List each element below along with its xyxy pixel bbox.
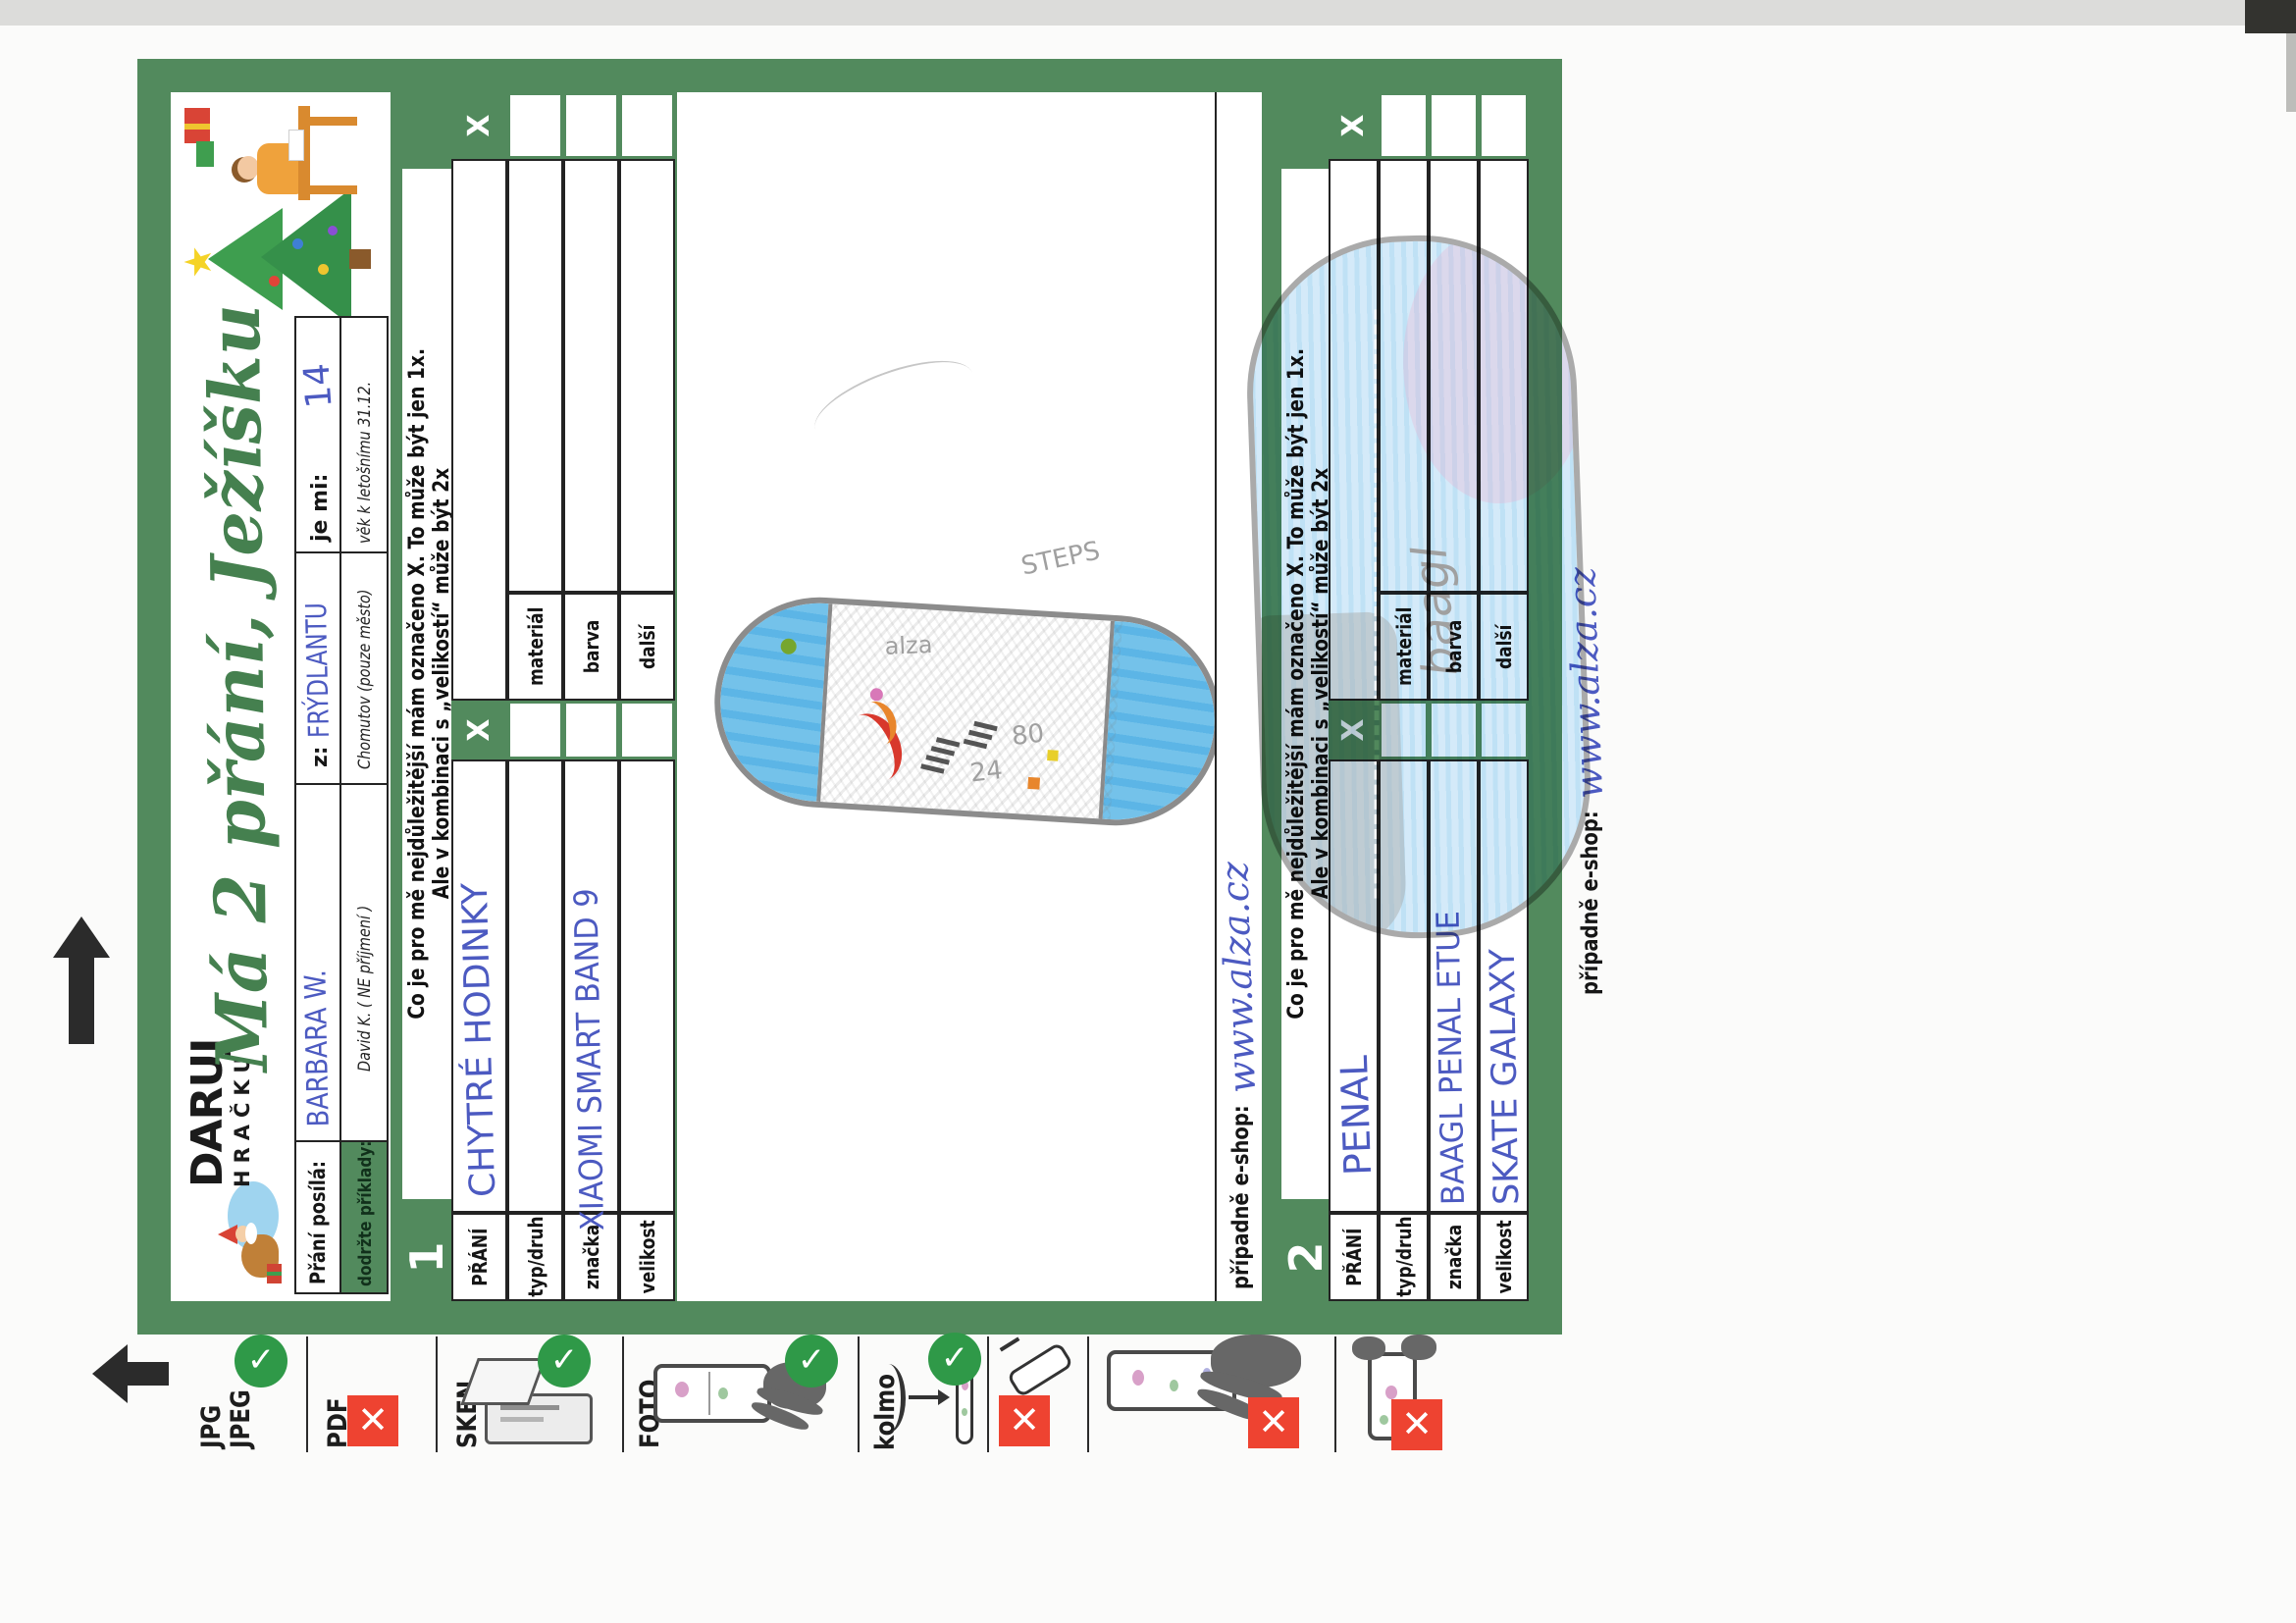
sender-value-handwriting: BARBARA W. xyxy=(290,838,337,1140)
checkbox-cell xyxy=(619,701,675,759)
case-brand-scribble: baagl xyxy=(1402,544,1468,678)
tilted-phone-icon xyxy=(1006,1341,1073,1398)
checkbox-cell xyxy=(507,92,563,159)
strip-item-kolmo: kolmo xyxy=(865,1335,983,1456)
form-title: Má 2 přání, Ježíšku xyxy=(192,315,308,1072)
importance-x-cell: X xyxy=(451,92,507,159)
age-label: je mi: xyxy=(308,474,333,542)
section1-number: 1 xyxy=(400,1216,453,1299)
scan-edge-artifact xyxy=(0,0,2296,26)
checkbox-cell xyxy=(563,92,619,159)
color-value-cell xyxy=(563,159,619,593)
example-name-cell: David K. ( NE příjmení ) xyxy=(339,783,389,1142)
cross-icon xyxy=(1248,1397,1299,1448)
brand1-handwriting: XIAOMI SMART BAND 9 xyxy=(566,888,611,1230)
eshop1-label: případně e-shop: xyxy=(1228,1105,1254,1289)
wish2-handwriting: PENAL xyxy=(1332,1055,1380,1177)
section1-eshop-row: případně e-shop: www.alza.cz xyxy=(1215,92,1262,1301)
section2-number: 2 xyxy=(1279,1216,1332,1299)
smartwatch-drawing: alza 24 80 xyxy=(708,591,1226,831)
watch-num1-scribble: 24 xyxy=(968,756,1004,789)
scanned-wish-form-page: DARUJ HRAČKU Má 2 přání, Ježíšku ★ xyxy=(0,0,2296,1623)
row-label: PŘÁNÍ xyxy=(468,1228,492,1285)
watch-num2-scribble: 80 xyxy=(1010,718,1045,752)
pencil-case-drawing: baagl xyxy=(1242,230,1596,943)
age-cell: je mi: 14 xyxy=(294,316,341,553)
example-age: věk k letošnímu 31.12. xyxy=(355,382,375,544)
hand-icon xyxy=(1352,1336,1385,1360)
eshop1-handwriting: www.alza.cz xyxy=(1213,861,1264,1093)
sender-value-cell: BARBARA W. xyxy=(294,783,341,1142)
from-value-handwriting: FRÝDLANTU xyxy=(299,602,336,738)
example-name: David K. ( NE příjmení ) xyxy=(355,906,375,1072)
checkbox-cell xyxy=(1379,92,1429,159)
eshop2-label: případně e-shop: xyxy=(1578,811,1603,995)
importance-x-cell: X xyxy=(451,701,507,759)
importance-x-cell: X xyxy=(1329,92,1379,159)
sender-label: Přání posílá: xyxy=(306,1161,330,1284)
checkbox-cell xyxy=(507,701,563,759)
check-icon xyxy=(538,1335,591,1387)
wide-empty-cell xyxy=(451,159,507,701)
section1-instructions: Co je pro mě nejdůležitější mám označeno… xyxy=(402,169,453,1199)
logo-wordmark: DARUJ HRAČKU xyxy=(186,1064,255,1187)
strip-item-portrait-phone xyxy=(1340,1335,1442,1456)
strip-item-hand-phone xyxy=(1093,1335,1329,1456)
sender-label-cell: Přání posílá: xyxy=(294,1140,341,1294)
cross-icon xyxy=(1391,1399,1442,1450)
x-mark: X xyxy=(462,718,496,741)
wish1-handwriting: CHYTRÉ HODINKY xyxy=(455,882,503,1197)
checkbox-cell xyxy=(1479,92,1529,159)
checkbox-cell xyxy=(619,92,675,159)
strip-item-foto: FOTO xyxy=(630,1335,852,1456)
row-label: typ/druh xyxy=(1392,1217,1416,1297)
row-label2: další xyxy=(636,624,659,668)
material-value-cell xyxy=(507,159,563,593)
star-icon: ★ xyxy=(177,245,220,279)
watch-brand-scribble: alza xyxy=(884,631,933,660)
orientation-arrow-icon xyxy=(53,916,110,1044)
size-value-cell xyxy=(619,759,675,1213)
row-label: typ/druh xyxy=(524,1217,548,1297)
row-label: značka xyxy=(580,1225,603,1289)
age-value-handwriting: 14 xyxy=(296,362,339,410)
instruction-line1: Co je pro mě nejdůležitější mám označeno… xyxy=(405,348,430,1020)
row-label: velikost xyxy=(1492,1220,1516,1293)
check-icon xyxy=(785,1335,838,1387)
scan-side-artifact xyxy=(2286,33,2296,112)
logo-line2: HRAČKU xyxy=(230,1064,255,1187)
example-age-cell: věk k letošnímu 31.12. xyxy=(339,316,389,553)
check-icon xyxy=(235,1335,287,1387)
brand2-handwriting: BAAGL PENAL ETUE xyxy=(1429,911,1472,1205)
from-cell: z: FRÝDLANTU xyxy=(294,551,341,785)
examples-label-cell: dodržte příklady: xyxy=(339,1140,389,1294)
christmas-scene-illustration-icon: ★ xyxy=(175,94,385,326)
cross-icon xyxy=(347,1395,398,1446)
size2-handwriting: SKATE GALAXY xyxy=(1484,949,1528,1206)
phone-icon xyxy=(653,1364,771,1423)
cross-icon xyxy=(999,1395,1050,1446)
watch-face: alza 24 80 xyxy=(816,603,1122,819)
other-value-cell xyxy=(619,159,675,593)
daruj-hracku-logo: DARUJ HRAČKU xyxy=(179,1064,294,1289)
strip-arrow-icon xyxy=(92,1344,169,1403)
rotated-document: DARUJ HRAČKU Má 2 přání, Ježíšku ★ xyxy=(0,0,2296,1623)
logo-line1: DARUJ xyxy=(186,1064,230,1187)
row-label2: materiál xyxy=(524,607,548,686)
row-label: velikost xyxy=(636,1220,659,1293)
checkbox-cell xyxy=(1429,92,1479,159)
examples-label: dodržte příklady: xyxy=(355,1141,376,1286)
santa-illustration-icon xyxy=(206,1176,290,1283)
type-value-cell xyxy=(507,759,563,1213)
x-mark: X xyxy=(1336,114,1371,136)
check-icon xyxy=(928,1333,981,1386)
example-city-cell: Chomutov (pouze město) xyxy=(339,551,389,785)
example-city: Chomutov (pouze město) xyxy=(355,590,375,769)
checkbox-cell xyxy=(563,701,619,759)
row-label: PŘÁNÍ xyxy=(1342,1228,1366,1285)
x-mark: X xyxy=(462,114,496,136)
scan-corner-artifact xyxy=(2245,0,2296,33)
row-label: značka xyxy=(1442,1225,1466,1289)
row-label2: barva xyxy=(580,620,603,674)
strip-item-pdf: PDF xyxy=(316,1335,432,1456)
strip-item-angled-phone xyxy=(993,1335,1083,1456)
from-label: z: xyxy=(308,746,333,767)
strip-item-jpg: JPGJPEG xyxy=(191,1335,301,1456)
strip-item-sken: SKEN xyxy=(444,1335,618,1456)
